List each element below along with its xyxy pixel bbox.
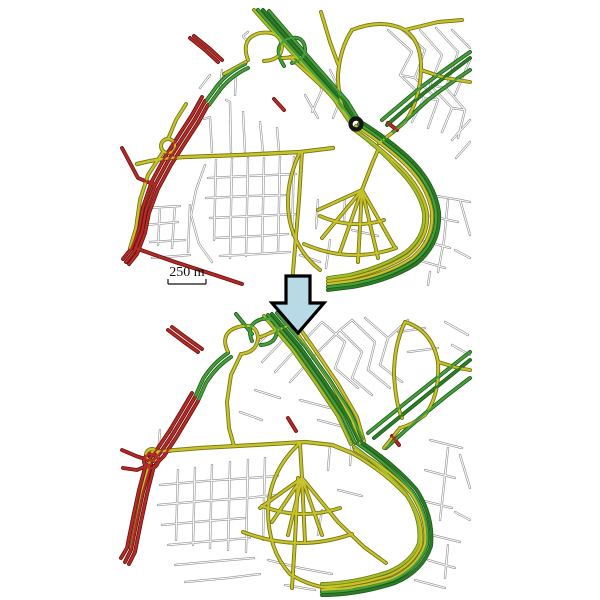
green-road — [236, 314, 252, 334]
minor-road — [340, 330, 362, 378]
red-road-casing — [122, 148, 155, 185]
scalebar-label: 250 m — [169, 265, 205, 280]
minor-road-fill — [255, 390, 280, 398]
minor-road-fill — [208, 174, 296, 178]
minor-road-fill — [460, 200, 470, 235]
minor-road-fill — [368, 370, 390, 388]
red-road — [194, 36, 222, 60]
minor-road-fill — [185, 574, 260, 582]
minor-road-fill — [365, 318, 388, 365]
minor-road-fill — [175, 558, 254, 565]
minor-road-fill — [340, 330, 362, 378]
minor-road — [365, 318, 388, 365]
minor-road-fill — [158, 495, 275, 505]
yellow-road — [268, 443, 352, 589]
lime-road — [322, 447, 419, 584]
minor-road-fill — [430, 440, 462, 448]
minor-road-fill — [380, 365, 402, 382]
yellow-road — [321, 12, 338, 64]
minor-road-fill — [425, 215, 458, 222]
minor-road-fill — [455, 250, 470, 258]
minor-road-fill — [460, 455, 470, 488]
minor-road-fill — [432, 535, 460, 542]
minor-road-fill — [162, 518, 245, 525]
minor-road-fill — [191, 165, 212, 262]
minor-road-fill — [305, 95, 318, 118]
scalebar: 250 m — [168, 265, 206, 284]
minor-road-fill — [445, 322, 468, 335]
minor-road-fill — [455, 512, 470, 520]
node-marker — [351, 119, 362, 130]
red-road — [274, 99, 284, 110]
map-after — [121, 313, 470, 595]
minor-road-fill — [452, 30, 470, 48]
minor-road-fill — [210, 214, 298, 218]
minor-road-fill — [300, 400, 330, 408]
minor-road-fill — [415, 580, 445, 588]
minor-road-fill — [425, 470, 455, 478]
red-road-casing — [126, 101, 205, 262]
minor-road-fill — [338, 490, 362, 496]
map-before — [122, 10, 470, 290]
minor-road-fill — [440, 448, 448, 520]
figure-canvas: 250 m — [0, 0, 600, 600]
red-road — [156, 401, 198, 464]
minor-road-fill — [240, 412, 262, 420]
red-road — [288, 418, 296, 431]
yellow-road — [362, 150, 378, 190]
figure-page: 250 m — [0, 0, 600, 600]
minor-road-fill — [428, 560, 455, 568]
minor-road-fill — [200, 75, 210, 88]
minor-road-fill — [456, 142, 470, 158]
